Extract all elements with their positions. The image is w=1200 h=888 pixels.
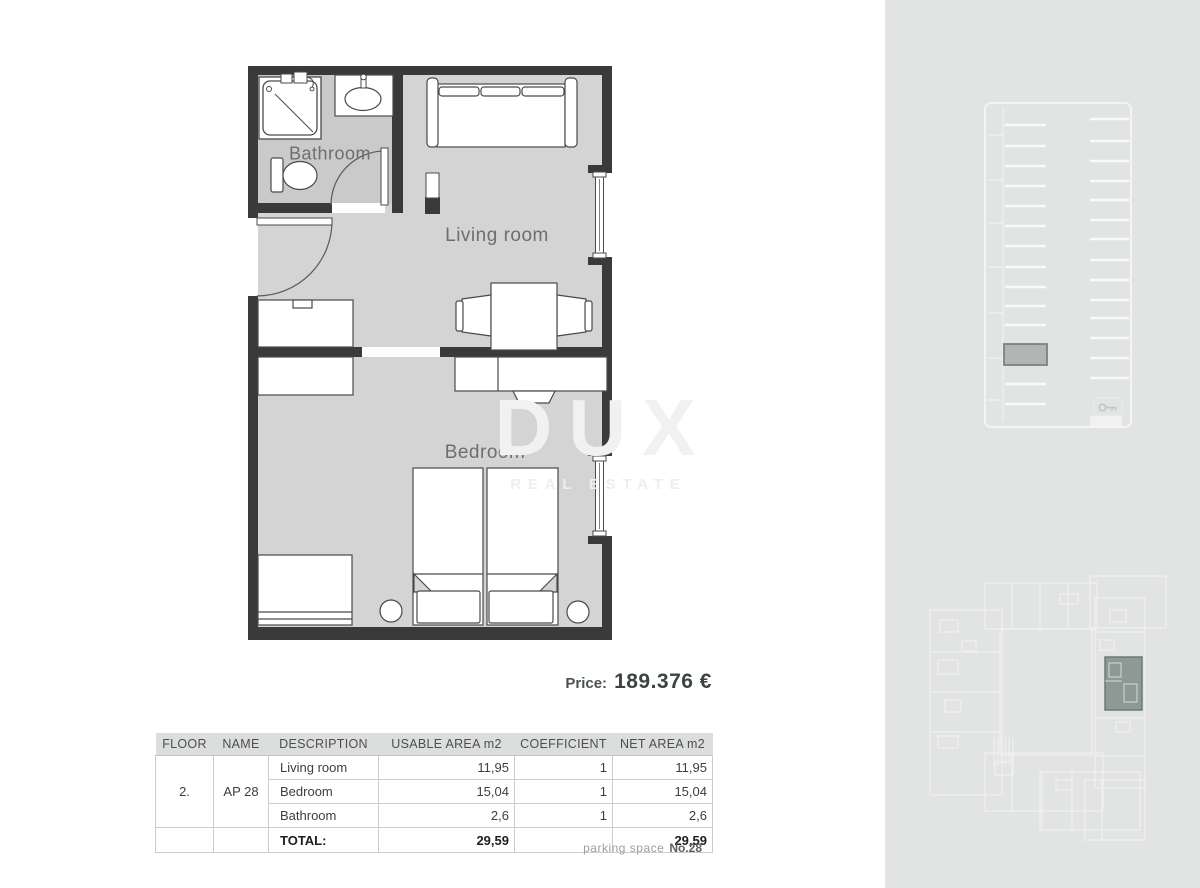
column-header-name: NAME xyxy=(214,733,269,756)
price-value: 189.376 € xyxy=(614,670,712,694)
net-area-cell: 11,95 xyxy=(613,756,713,780)
nightstand-left xyxy=(380,600,402,622)
usable-area-cell: 2,6 xyxy=(379,804,515,828)
bathroom-label: Bathroom xyxy=(289,144,371,165)
column-header-description: DESCRIPTION xyxy=(269,733,379,756)
description-cell: Living room xyxy=(269,756,379,780)
coefficient-cell: 1 xyxy=(515,780,613,804)
coefficient-cell: 1 xyxy=(515,756,613,780)
table-header-row: FLOOR NAME DESCRIPTION USABLE AREA m2 CO… xyxy=(156,733,713,756)
parking-note-label: parking space xyxy=(583,841,664,855)
side-panel xyxy=(885,0,1200,888)
hall-cabinet xyxy=(258,300,353,395)
usable-area-cell: 11,95 xyxy=(379,756,515,780)
net-area-cell: 15,04 xyxy=(613,780,713,804)
column-header-floor: FLOOR xyxy=(156,733,214,756)
parking-note-number: No.28 xyxy=(669,841,702,855)
side-panel-graphics xyxy=(885,0,1200,888)
parking-lot-diagram xyxy=(985,103,1131,428)
living-room-label: Living room xyxy=(445,225,549,247)
page: Bathroom Living room Bedroom DUX REAL ES… xyxy=(0,0,1200,888)
net-area-cell: 2,6 xyxy=(613,804,713,828)
area-table: FLOOR NAME DESCRIPTION USABLE AREA m2 CO… xyxy=(155,733,713,853)
table-row: 2. AP 28 Living room 11,95 1 11,95 xyxy=(156,756,713,780)
radiator xyxy=(426,173,439,198)
coefficient-cell: 1 xyxy=(515,804,613,828)
column-header-coefficient: COEFFICIENT xyxy=(515,733,613,756)
parking-highlight xyxy=(1004,344,1047,365)
column-header-usable-area: USABLE AREA m2 xyxy=(379,733,515,756)
column-header-net-area: NET AREA m2 xyxy=(613,733,713,756)
shower xyxy=(259,72,321,139)
key-icon xyxy=(1094,398,1122,415)
total-label-cell: TOTAL: xyxy=(269,828,379,853)
parking-entry-marker xyxy=(1090,416,1122,428)
sofa xyxy=(427,78,577,147)
empty-cell xyxy=(156,828,214,853)
dresser xyxy=(258,555,352,625)
price: Price: 189.376 € xyxy=(400,670,712,694)
usable-area-cell: 15,04 xyxy=(379,780,515,804)
floor-cell: 2. xyxy=(156,756,214,828)
name-cell: AP 28 xyxy=(214,756,269,828)
empty-cell xyxy=(214,828,269,853)
parking-note: parking space No.28 xyxy=(400,841,702,855)
price-label: Price: xyxy=(565,675,607,692)
nightstand-right xyxy=(567,601,589,623)
description-cell: Bathroom xyxy=(269,804,379,828)
bedroom-label: Bedroom xyxy=(445,442,526,464)
sink xyxy=(335,74,393,116)
description-cell: Bedroom xyxy=(269,780,379,804)
building-key-plan xyxy=(930,576,1166,840)
